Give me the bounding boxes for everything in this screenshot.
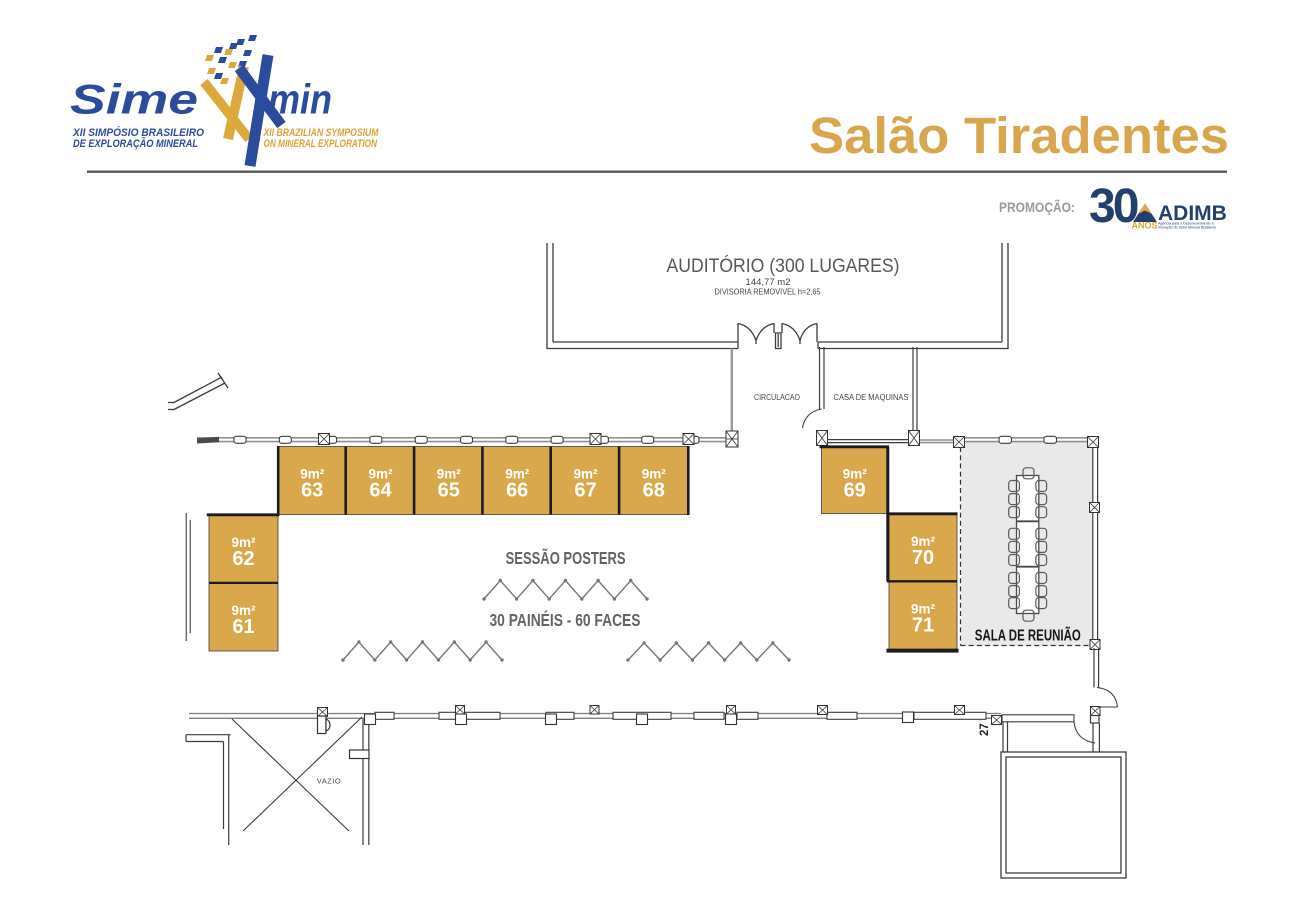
svg-text:Sime: Sime (70, 76, 198, 123)
svg-text:min: min (268, 76, 332, 123)
svg-text:Inovação do Setor Mineral Bras: Inovação do Setor Mineral Brasileiro (1158, 226, 1216, 230)
svg-text:68: 68 (643, 480, 665, 502)
svg-text:AUDITÓRIO (300 LUGARES): AUDITÓRIO (300 LUGARES) (667, 255, 900, 277)
svg-text:CIRCULACAO: CIRCULACAO (754, 392, 800, 402)
svg-text:69: 69 (844, 480, 866, 502)
svg-text:SESSÃO POSTERS: SESSÃO POSTERS (506, 547, 626, 568)
svg-text:65: 65 (438, 480, 460, 502)
svg-text:DIVISORIA REMOVIVEL h=2,65: DIVISORIA REMOVIVEL h=2,65 (715, 287, 821, 297)
svg-text:27: 27 (979, 723, 991, 736)
svg-text:VAZIO: VAZIO (317, 777, 341, 786)
svg-text:70: 70 (912, 547, 934, 569)
svg-text:30: 30 (1089, 180, 1138, 233)
svg-text:61: 61 (232, 616, 254, 638)
svg-text:DE EXPLORAÇÃO MINERAL: DE EXPLORAÇÃO MINERAL (73, 137, 198, 150)
svg-text:67: 67 (574, 480, 596, 502)
svg-text:PROMOÇÃO:: PROMOÇÃO: (999, 198, 1075, 215)
svg-text:30 PAINÉIS - 60 FACES: 30 PAINÉIS - 60 FACES (490, 609, 641, 630)
svg-text:ANOS: ANOS (1132, 221, 1158, 231)
svg-text:Salão Tiradentes: Salão Tiradentes (809, 107, 1229, 164)
svg-text:66: 66 (506, 480, 528, 502)
svg-text:64: 64 (369, 480, 392, 502)
svg-text:SALA DE REUNIÃO: SALA DE REUNIÃO (975, 627, 1081, 645)
svg-text:71: 71 (912, 615, 934, 637)
svg-text:62: 62 (232, 548, 254, 570)
svg-text:ON MINERAL EXPLORATION: ON MINERAL EXPLORATION (264, 138, 378, 150)
svg-text:CASA DE MAQUINAS: CASA DE MAQUINAS (834, 392, 909, 402)
svg-text:63: 63 (301, 480, 323, 502)
